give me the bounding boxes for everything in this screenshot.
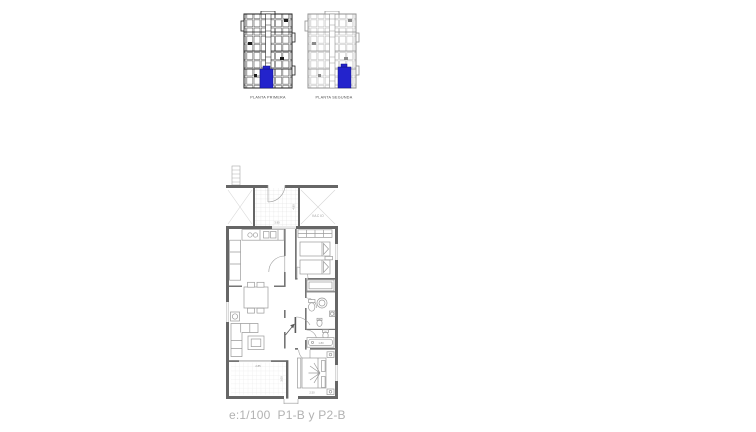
key-plan-first-floor xyxy=(239,11,297,93)
dim-terrace-width: 3.90 xyxy=(274,221,280,225)
master-bedroom: 2.50 xyxy=(297,352,334,395)
nightstand xyxy=(325,256,333,259)
side-table xyxy=(231,312,240,321)
dim-terrace2-width: 2.85 xyxy=(255,364,261,368)
single-bed xyxy=(300,242,330,256)
hall-closet xyxy=(307,280,334,291)
key-plan-2-label: PLANTA SEGUNDA xyxy=(312,96,355,100)
chair xyxy=(248,282,255,287)
toilet-tank xyxy=(309,300,316,303)
pillow xyxy=(322,361,326,372)
sheet-caption: e:1/100 P1-B y P2-B xyxy=(229,408,346,422)
chair xyxy=(257,308,264,313)
chair xyxy=(257,282,264,287)
void-label: VACIO xyxy=(312,214,324,218)
single-bed xyxy=(300,260,330,274)
pillow xyxy=(322,377,326,388)
living-room xyxy=(231,282,269,356)
upper-terrace: VACIO 3.90 4.80 xyxy=(226,185,338,226)
entry-porch xyxy=(284,399,298,404)
dining-table xyxy=(244,287,268,308)
drawing-sheet: PLANTA PRIMERA PLANTA SEGUNDA VACIO xyxy=(0,0,756,432)
coffee-table xyxy=(248,336,264,350)
dim-master-bed: 2.50 xyxy=(309,390,315,394)
sink xyxy=(271,232,277,239)
kitchen xyxy=(230,230,284,281)
stair-detail xyxy=(232,166,240,185)
bathroom-2: 1.80 xyxy=(307,330,334,347)
kitchen-counter xyxy=(230,240,241,280)
washbasin xyxy=(317,298,327,308)
bedroom-2 xyxy=(298,230,333,274)
floor-plan: VACIO 3.90 4.80 xyxy=(222,160,344,405)
dim-terrace2-depth: 3.00 xyxy=(280,376,284,382)
wardrobe xyxy=(297,358,300,388)
lower-terrace: 2.85 3.00 xyxy=(229,360,288,398)
key-plan-1-label: PLANTA PRIMERA xyxy=(246,96,289,100)
nightstand xyxy=(327,352,334,358)
chair xyxy=(248,308,255,313)
dim-terrace-depth: 4.80 xyxy=(292,204,296,210)
highlighted-unit xyxy=(260,66,273,88)
nightstand xyxy=(327,389,334,395)
highlighted-unit xyxy=(338,64,351,88)
entry-door xyxy=(286,317,297,335)
bathroom-1 xyxy=(309,298,336,326)
sink xyxy=(264,232,270,239)
toilet xyxy=(309,303,315,311)
key-plan-second-floor xyxy=(303,11,361,93)
dim-bathtub: 1.80 xyxy=(318,341,324,345)
